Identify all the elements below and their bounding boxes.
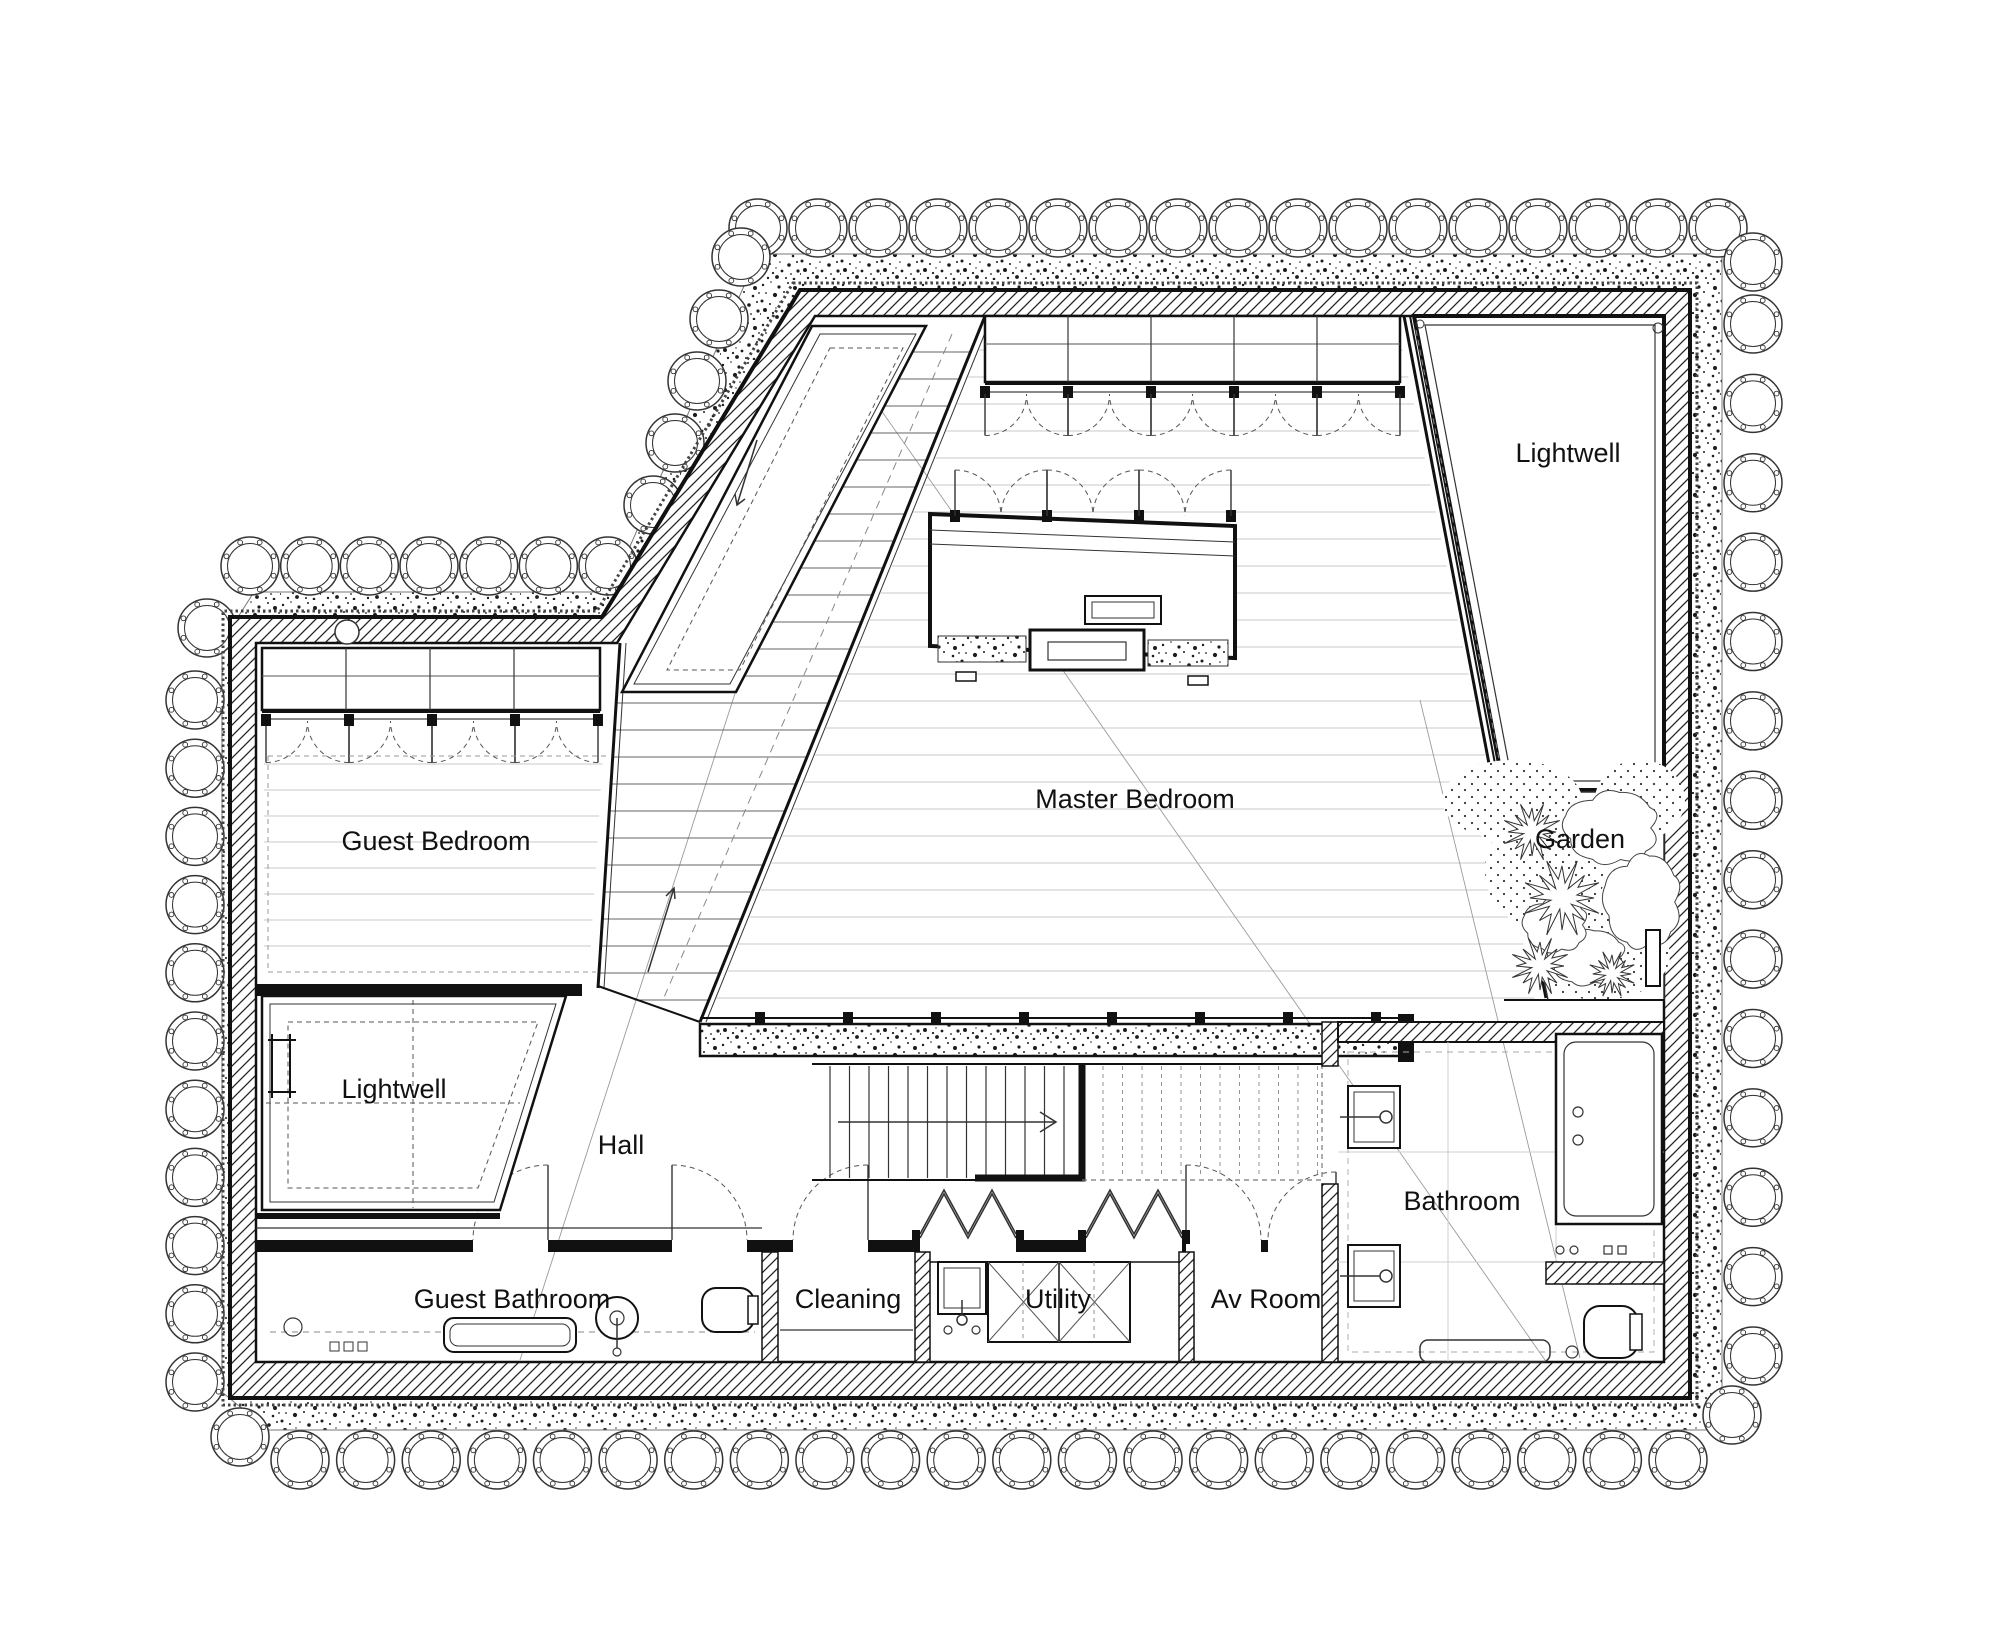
pile-icon: [1329, 199, 1387, 257]
pile-icon: [166, 944, 224, 1002]
pile-icon: [166, 1012, 224, 1070]
pile-icon: [1583, 1431, 1641, 1489]
lightwell-lower-room: [256, 996, 566, 1216]
pile-icon: [1724, 1168, 1782, 1226]
guest-rail-posts: [261, 714, 603, 726]
pile-icon: [849, 199, 907, 257]
headboard-right: [1148, 640, 1228, 666]
pile-icon: [1209, 199, 1267, 257]
bath-taps: [1556, 1246, 1626, 1254]
pile-icon: [166, 876, 224, 934]
pile-icon: [1629, 199, 1687, 257]
pile-icon: [271, 1431, 329, 1489]
floor-plan-drawing: Lightwell Garden Master Bedroom Guest Be…: [0, 0, 2000, 1644]
bathtub: [1556, 1034, 1662, 1224]
room-label-utility: Utility: [1025, 1284, 1091, 1314]
pile-icon: [166, 1080, 224, 1138]
central-stair: [812, 1064, 1322, 1180]
pile-icon: [1255, 1431, 1313, 1489]
headboard-center: [1030, 630, 1144, 670]
pile-icon: [993, 1431, 1051, 1489]
garden-bench: [1646, 930, 1660, 986]
pile-icon: [969, 199, 1027, 257]
washing-machine-icon: [335, 620, 359, 644]
garden-area: [1442, 760, 1685, 1000]
pile-icon: [1389, 199, 1447, 257]
pile-icon: [1724, 692, 1782, 750]
pile-icon: [1321, 1431, 1379, 1489]
room-label-master-bedroom: Master Bedroom: [1035, 784, 1235, 814]
room-label-av-room: Av Room: [1211, 1284, 1322, 1314]
pile-icon: [166, 1285, 224, 1343]
pile-icon: [668, 352, 726, 410]
corridor-south-wall: [256, 1240, 1268, 1252]
floor-drain-icon: [284, 1318, 302, 1336]
pile-icon: [519, 537, 577, 595]
pile-icon: [665, 1431, 723, 1489]
pile-icon: [166, 1148, 224, 1206]
room-label-guest-bathroom: Guest Bathroom: [414, 1284, 611, 1314]
room-label-lightwell-upper: Lightwell: [1515, 438, 1620, 468]
pile-icon: [1569, 199, 1627, 257]
pile-icon: [1724, 295, 1782, 353]
pile-icon: [1649, 1431, 1707, 1489]
pile-icon: [166, 1353, 224, 1411]
pile-icon: [1149, 199, 1207, 257]
pile-icon: [166, 739, 224, 797]
pile-icon: [1703, 1386, 1761, 1444]
master-wardrobe: [980, 316, 1405, 398]
pile-icon: [789, 199, 847, 257]
pile-icon: [1518, 1431, 1576, 1489]
pile-icon: [211, 1408, 269, 1466]
toilet-nook-wall: [1546, 1262, 1664, 1284]
pile-icon: [1452, 1431, 1510, 1489]
pile-icon: [221, 537, 279, 595]
pile-icon: [1269, 199, 1327, 257]
pile-icon: [468, 1431, 526, 1489]
pile-icon: [178, 599, 236, 657]
pile-icon: [281, 537, 339, 595]
pile-icon: [712, 228, 770, 286]
pile-icon: [400, 537, 458, 595]
pile-icon: [1724, 1009, 1782, 1067]
pile-icon: [1724, 930, 1782, 988]
pile-icon: [337, 1431, 395, 1489]
bathroom-sink: [1340, 1086, 1400, 1148]
pile-icon: [166, 1217, 224, 1275]
pile-icon: [1724, 233, 1782, 291]
room-label-cleaning: Cleaning: [795, 1284, 902, 1314]
pile-icon: [1724, 374, 1782, 432]
pile-icon: [533, 1431, 591, 1489]
room-label-bathroom: Bathroom: [1403, 1186, 1520, 1216]
pile-icon: [340, 537, 398, 595]
stair-handrail-wall: [975, 1064, 1082, 1178]
pile-icon: [166, 807, 224, 865]
pile-icon: [690, 290, 748, 348]
pile-icon: [1724, 454, 1782, 512]
pile-icon: [1724, 851, 1782, 909]
room-label-hall: Hall: [598, 1130, 645, 1160]
pile-icon: [1509, 199, 1567, 257]
pile-icon: [402, 1431, 460, 1489]
guest-toilet: [702, 1288, 754, 1332]
room-label-guest-bedroom: Guest Bedroom: [341, 826, 530, 856]
bed: [930, 510, 1236, 685]
pile-icon: [1124, 1431, 1182, 1489]
pile-icon: [796, 1431, 854, 1489]
pile-icon: [1089, 199, 1147, 257]
bath-mat: [1420, 1340, 1550, 1362]
pile-icon: [1724, 771, 1782, 829]
folding-doors: [912, 1190, 1190, 1244]
bathroom-sink: [1340, 1245, 1400, 1307]
headboard-left: [938, 636, 1026, 662]
pile-icon: [1190, 1431, 1248, 1489]
pile-icon: [1058, 1431, 1116, 1489]
guest-bathtub: [444, 1318, 576, 1352]
guest-bedroom-room: [256, 756, 610, 996]
pile-icon: [1387, 1431, 1445, 1489]
pile-icon: [909, 199, 967, 257]
pile-icon: [1449, 199, 1507, 257]
pile-icon: [460, 537, 518, 595]
pile-icon: [862, 1431, 920, 1489]
pile-icon: [927, 1431, 985, 1489]
pile-icon: [599, 1431, 657, 1489]
pile-icon: [1029, 199, 1087, 257]
room-label-garden: Garden: [1535, 824, 1625, 854]
guest-bedroom-south-wall: [256, 984, 582, 996]
room-label-lightwell-lower: Lightwell: [341, 1074, 446, 1104]
floor-plan-page: Lightwell Garden Master Bedroom Guest Be…: [0, 0, 2000, 1644]
pile-icon: [1724, 1248, 1782, 1306]
bed-tray: [1085, 596, 1161, 624]
pile-icon: [166, 671, 224, 729]
pile-icon: [730, 1431, 788, 1489]
pile-icon: [1724, 533, 1782, 591]
pile-icon: [1724, 1327, 1782, 1385]
toilet: [1566, 1306, 1642, 1358]
pile-icon: [1724, 613, 1782, 671]
pile-icon: [1724, 1089, 1782, 1147]
